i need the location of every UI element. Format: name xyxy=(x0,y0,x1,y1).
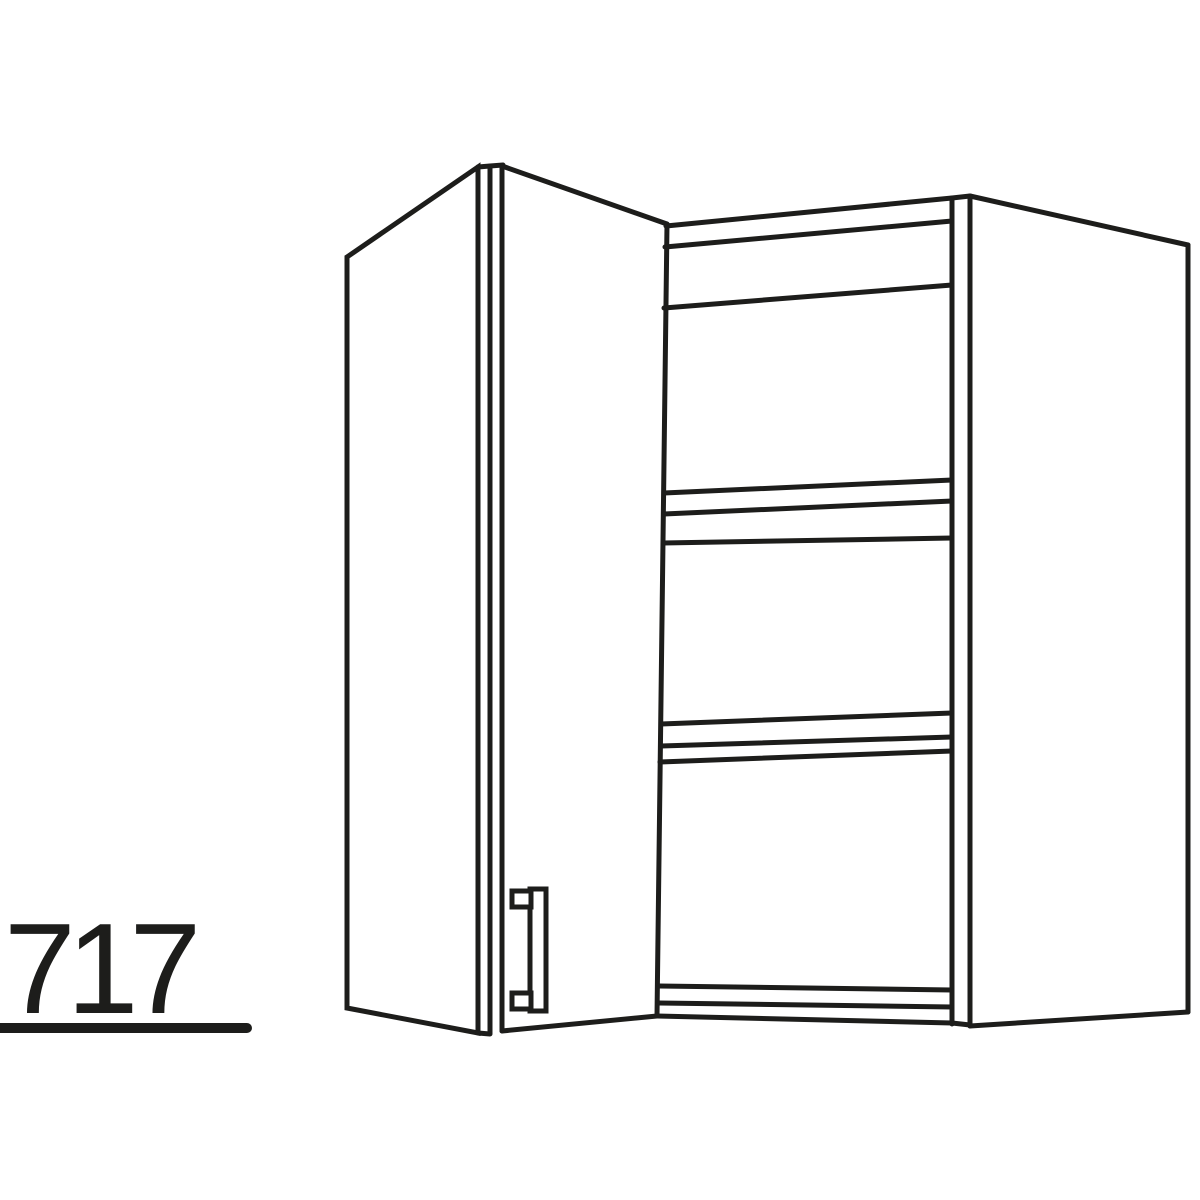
cabinet-interior xyxy=(657,198,970,1025)
door-handle xyxy=(512,889,546,1011)
handle-bottom-mount xyxy=(512,993,531,1009)
left-face-top-edge xyxy=(502,166,667,224)
right-panel-bottom-edge xyxy=(970,1012,1188,1026)
interior-bottom-panel xyxy=(659,986,952,1007)
lower-shelf xyxy=(660,713,952,762)
upper-shelf xyxy=(663,480,952,543)
carcass-bottom-front-edge xyxy=(657,1016,970,1025)
door-front-face xyxy=(347,167,478,1033)
inner-corner-edge xyxy=(657,224,667,1016)
open-door xyxy=(347,166,490,1034)
right-side-panel xyxy=(952,196,1188,1026)
right-apex-connector xyxy=(952,196,970,198)
height-dimension-label: 717 xyxy=(4,905,192,1034)
interior-top-panel xyxy=(664,198,952,308)
handle-top-mount xyxy=(512,891,531,907)
diagram-canvas: 717 xyxy=(0,0,1200,1200)
height-dimension-underline xyxy=(0,1023,252,1033)
right-panel-top-edge xyxy=(970,196,1188,245)
left-face-bottom-edge xyxy=(502,1016,657,1031)
